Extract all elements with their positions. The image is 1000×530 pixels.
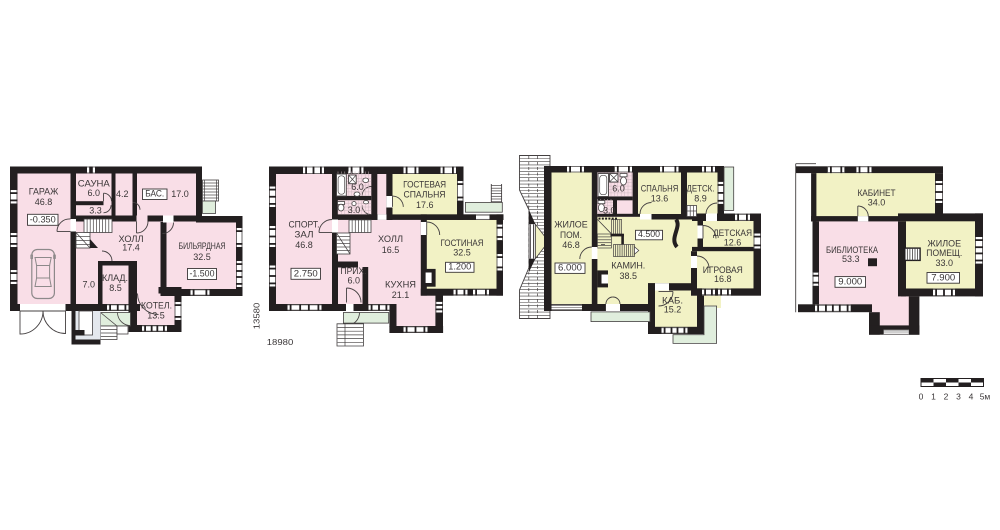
svg-text:17.0: 17.0 [171, 189, 189, 199]
svg-text:4.500: 4.500 [638, 229, 660, 239]
svg-text:ДЕТСК.: ДЕТСК. [687, 184, 715, 194]
svg-text:БИЛЬЯРДНАЯ: БИЛЬЯРДНАЯ [179, 241, 226, 251]
svg-text:12.6: 12.6 [724, 238, 742, 248]
svg-text:17.6: 17.6 [416, 200, 434, 210]
svg-text:СПОРТ.: СПОРТ. [289, 219, 320, 229]
svg-text:2: 2 [944, 392, 949, 402]
svg-text:ЖИЛОЕ: ЖИЛОЕ [554, 219, 588, 229]
svg-text:3.3: 3.3 [89, 206, 102, 216]
svg-text:КЛАД.: КЛАД. [102, 273, 128, 283]
svg-text:СПАЛЬНЯ: СПАЛЬНЯ [641, 184, 679, 194]
svg-text:3: 3 [956, 392, 961, 402]
svg-text:0: 0 [919, 392, 924, 402]
svg-text:2.750: 2.750 [294, 269, 318, 279]
svg-text:-1.500: -1.500 [190, 269, 215, 279]
svg-text:ГАРАЖ: ГАРАЖ [29, 187, 59, 197]
svg-text:ХОЛЛ: ХОЛЛ [378, 234, 403, 244]
svg-text:-0.350: -0.350 [30, 215, 56, 225]
svg-text:ЗАЛ: ЗАЛ [295, 230, 314, 240]
svg-text:3.0: 3.0 [603, 206, 616, 216]
svg-text:15.2: 15.2 [664, 304, 682, 314]
svg-text:6.000: 6.000 [558, 263, 582, 273]
svg-text:46.8: 46.8 [295, 240, 313, 250]
svg-text:САУНА: САУНА [78, 178, 110, 188]
svg-text:8.9: 8.9 [694, 194, 707, 204]
svg-text:46.8: 46.8 [562, 240, 580, 250]
svg-text:6.0: 6.0 [612, 183, 625, 193]
svg-text:16.8: 16.8 [714, 274, 732, 284]
svg-text:32.5: 32.5 [193, 252, 211, 262]
svg-text:7.900: 7.900 [931, 272, 955, 282]
svg-text:9.000: 9.000 [838, 277, 862, 287]
svg-text:6.0: 6.0 [88, 188, 101, 198]
svg-text:17.4: 17.4 [122, 243, 140, 253]
svg-text:4.2: 4.2 [116, 189, 129, 199]
svg-text:ГОСТИНАЯ: ГОСТИНАЯ [441, 238, 484, 248]
svg-text:КАМИН.: КАМИН. [611, 261, 645, 271]
svg-text:КОТЕЛ.: КОТЕЛ. [141, 301, 172, 311]
svg-text:53.3: 53.3 [842, 254, 860, 264]
svg-text:46.8: 46.8 [35, 197, 53, 207]
svg-text:4: 4 [969, 392, 974, 402]
svg-text:3.0: 3.0 [348, 205, 361, 215]
svg-text:7.0: 7.0 [82, 280, 95, 290]
svg-text:ДЕТСКАЯ: ДЕТСКАЯ [713, 228, 752, 238]
svg-text:6.0: 6.0 [351, 182, 364, 192]
svg-text:БАС.: БАС. [145, 189, 164, 199]
svg-text:6.0: 6.0 [348, 275, 361, 285]
svg-text:13580: 13580 [252, 302, 262, 329]
svg-text:13.6: 13.6 [651, 194, 669, 204]
svg-text:КУХНЯ: КУХНЯ [385, 280, 416, 290]
svg-text:1.200: 1.200 [448, 262, 471, 272]
svg-text:8.5: 8.5 [109, 283, 122, 293]
svg-text:38.5: 38.5 [620, 271, 638, 281]
svg-text:1: 1 [931, 392, 936, 402]
svg-text:СПАЛЬНЯ: СПАЛЬНЯ [404, 189, 446, 199]
svg-text:ПОМ.: ПОМ. [560, 230, 582, 240]
svg-text:33.0: 33.0 [936, 258, 954, 268]
svg-text:ПОМЕЩ.: ПОМЕЩ. [926, 248, 962, 258]
svg-text:13.5: 13.5 [147, 310, 165, 320]
svg-text:18980: 18980 [267, 337, 294, 347]
svg-text:ГОСТЕВАЯ: ГОСТЕВАЯ [403, 180, 446, 190]
svg-text:21.1: 21.1 [392, 290, 410, 300]
svg-text:32.5: 32.5 [453, 247, 471, 257]
svg-text:16.5: 16.5 [382, 245, 400, 255]
svg-text:5м: 5м [980, 392, 991, 402]
svg-text:34.0: 34.0 [868, 198, 886, 208]
